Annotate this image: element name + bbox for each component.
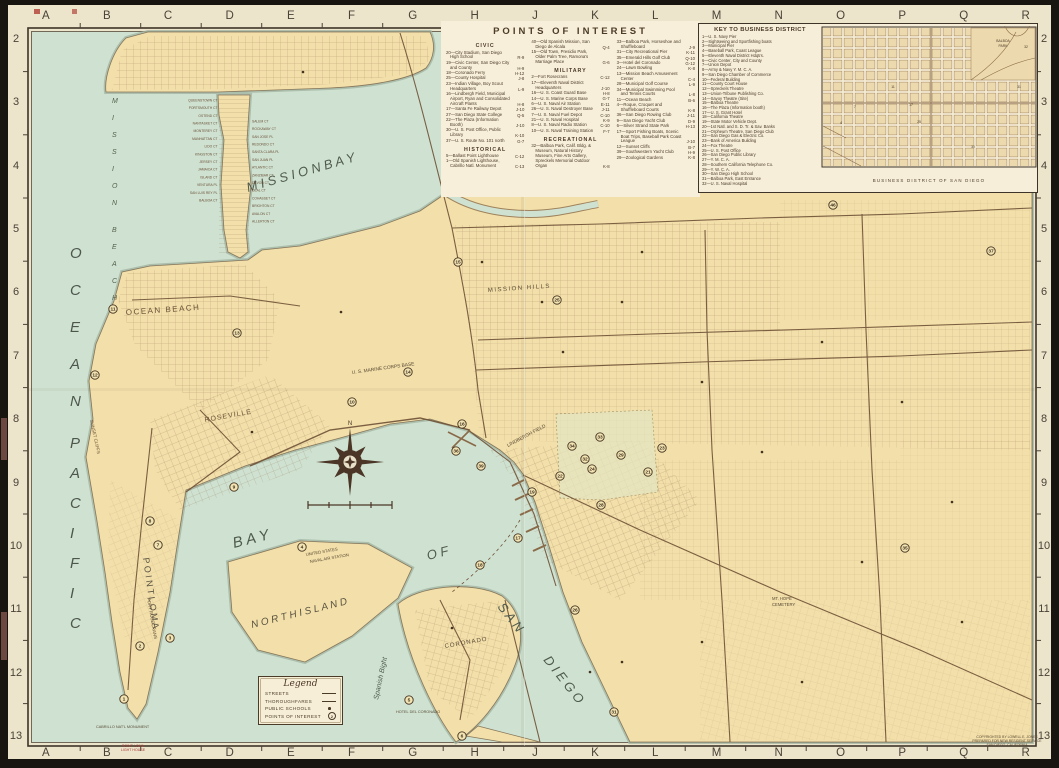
svg-text:17: 17	[515, 536, 521, 542]
grid-number: 5	[1041, 223, 1047, 235]
poi-entry: 20—City Stadium, San Diego High SchoolR-…	[446, 51, 524, 61]
grid-number: 10	[10, 540, 22, 552]
svg-text:22: 22	[557, 474, 563, 480]
svg-text:7: 7	[157, 543, 160, 549]
business-district-key-panel: KEY TO BUSINESS DISTRICT 1—U. S. Navy Pi…	[698, 23, 1038, 193]
svg-text:29: 29	[618, 453, 624, 459]
grid-number: 11	[1038, 603, 1049, 615]
grid-letter: C	[164, 10, 172, 24]
svg-text:34: 34	[569, 444, 575, 450]
grid-columns-bottom: ABCDEFGHJKLMNOPQR	[42, 747, 1030, 761]
svg-text:17: 17	[909, 103, 913, 107]
poi-entry: HISTORICAL	[446, 147, 524, 153]
grid-number: 9	[13, 477, 19, 489]
grid-letter: R	[1022, 747, 1030, 761]
poi-column-2: 40—Old Spanish Mission, San Diego de Alc…	[531, 40, 609, 170]
grid-letter: D	[225, 747, 233, 761]
poi-column-3: 33—Balboa Park, Horseshoe and Shuffleboa…	[617, 40, 695, 170]
points-of-interest-panel: POINTS OF INTEREST CIVIC20—City Stadium,…	[441, 21, 700, 197]
svg-text:46: 46	[830, 203, 836, 209]
grid-letter: O	[836, 10, 845, 24]
key-entry: 32—U. S. Naval Hospital	[702, 182, 818, 187]
legend-rows: STREETS THOROUGHFARES PUBLIC SCHOOLS POI…	[265, 690, 336, 720]
svg-text:26: 26	[572, 608, 578, 614]
grid-letter: P	[898, 747, 906, 761]
poi-entry: 32—Balboa Park, Calif. Bldg. & Museum, N…	[531, 144, 609, 168]
svg-text:14: 14	[405, 370, 411, 376]
poi-entry: 17—Sport Fishing Boats, Scenic Boat Trip…	[617, 130, 695, 145]
grid-number: 4	[1041, 160, 1047, 172]
svg-text:2: 2	[139, 644, 142, 650]
grid-number: 10	[1038, 540, 1050, 552]
legend-panel: Legend STREETS THOROUGHFARES PUBLIC SCHO…	[258, 676, 343, 725]
svg-text:30: 30	[971, 145, 975, 149]
grid-letter: P	[898, 10, 906, 24]
poi-columns: CIVIC20—City Stadium, San Diego High Sch…	[446, 40, 695, 170]
legend-symbol	[322, 701, 336, 702]
poi-entry: CIVIC	[446, 43, 524, 49]
edge-mark	[1, 418, 7, 460]
svg-text:16: 16	[459, 422, 465, 428]
legend-row: STREETS	[265, 690, 336, 698]
grid-number: 13	[10, 730, 22, 742]
svg-text:4: 4	[301, 545, 304, 551]
svg-text:19: 19	[529, 490, 535, 496]
grid-letter: J	[532, 747, 538, 761]
legend-label: THOROUGHFARES	[265, 699, 322, 704]
grid-letter: C	[164, 747, 172, 761]
court-names-east: SALEM CT ROCKAWAY CT SAN JOSE PL REDONDO…	[252, 118, 313, 226]
grid-letter: D	[225, 10, 233, 24]
poi-entry: 1—Old Spanish Lighthouse, Cabrillo Natl.…	[446, 159, 524, 169]
legend-label: PUBLIC SCHOOLS	[265, 706, 328, 711]
edge-mark	[1, 612, 7, 660]
svg-text:31: 31	[1017, 85, 1021, 89]
legend-symbol	[328, 707, 331, 710]
grid-letter: F	[348, 10, 355, 24]
legend-row: PUBLIC SCHOOLS	[265, 705, 336, 713]
inset-balboa-label: BALBOA	[996, 39, 1010, 43]
svg-text:32: 32	[582, 457, 588, 463]
poi-entry: 34—Municipal Swimming Pool and Tennis Co…	[617, 88, 695, 98]
inset-balboa-park	[971, 28, 1035, 80]
poi-entry: MILITARY	[531, 68, 609, 74]
legend-label: POINTS OF INTEREST	[265, 714, 328, 719]
court-names-west: QUEENSTOWN CT PORTSMOUTH CT OSTEND CT NA…	[146, 97, 218, 205]
grid-letter: N	[775, 747, 783, 761]
svg-text:25: 25	[554, 298, 560, 304]
svg-text:12: 12	[92, 373, 98, 379]
svg-text:11: 11	[110, 307, 115, 313]
grid-number: 8	[13, 413, 19, 425]
legend-title: Legend	[265, 679, 336, 689]
poi-entry: 30—U. S. Post Office, Public LibraryK-10	[446, 128, 524, 138]
grid-number: 5	[13, 223, 19, 235]
grid-number: 12	[1038, 667, 1050, 679]
mt-hope-label2: CEMETERY	[772, 602, 795, 607]
legend-symbol	[322, 693, 336, 694]
grid-letter: F	[348, 747, 355, 761]
grid-letter: H	[470, 747, 478, 761]
grid-number: 7	[1041, 350, 1047, 362]
grid-number: 3	[1041, 96, 1047, 108]
copyright-note: COPYRIGHTED BY LOWELL E. JONES PREPARED …	[970, 735, 1044, 747]
grid-number: 12	[10, 667, 22, 679]
svg-text:28: 28	[598, 503, 604, 509]
grid-number: 2	[1041, 33, 1047, 45]
grid-rows-right: 2345678910111213	[1037, 33, 1051, 742]
svg-text:7: 7	[854, 105, 856, 109]
poi-entry: RECREATIONAL	[531, 137, 609, 143]
poi-column-1: CIVIC20—City Stadium, San Diego High Sch…	[446, 40, 524, 170]
poi-title: POINTS OF INTEREST	[446, 26, 695, 37]
svg-text:1: 1	[123, 697, 126, 703]
key-list-column: KEY TO BUSINESS DISTRICT 1—U. S. Navy Pi…	[702, 26, 821, 190]
grid-number: 8	[1041, 413, 1047, 425]
svg-text:31: 31	[611, 710, 617, 716]
grid-letter: B	[103, 747, 111, 761]
svg-text:24: 24	[589, 467, 595, 473]
grid-letter: A	[42, 747, 50, 761]
corner-mark	[34, 9, 40, 14]
grid-letter: N	[775, 10, 783, 24]
svg-text:4: 4	[840, 121, 842, 125]
svg-text:35: 35	[902, 546, 908, 552]
inset-caption: BUSINESS DISTRICT OF SAN DIEGO	[873, 178, 986, 183]
grid-number: 2	[13, 33, 19, 45]
svg-text:8: 8	[149, 519, 152, 525]
grid-letter: Q	[959, 747, 968, 761]
grid-number: 6	[13, 286, 19, 298]
legend-row: POINTS OF INTEREST 2	[265, 713, 336, 721]
grid-letter: G	[408, 10, 417, 24]
poi-entry: 16—Lindbergh Field, Municipal Airport, R…	[446, 92, 524, 107]
grid-letter: E	[287, 10, 295, 24]
grid-number: 7	[13, 350, 19, 362]
key-list: 1—U. S. Navy Pier2—Sightseeing and Sport…	[702, 35, 818, 187]
poi-entry: 10—U. S. Naval Training StationF-7	[531, 129, 609, 134]
mt-hope-label: MT. HOPE	[772, 596, 792, 601]
poi-entry: 37—U. S. Route No. 101 northG-7	[446, 139, 524, 144]
business-district-inset: BALBOA PARK 47111725303132 BUSINESS DIST…	[821, 26, 1037, 190]
grid-number: 9	[1041, 477, 1047, 489]
svg-text:10: 10	[349, 400, 355, 406]
hotel-del-coronado-label: HOTEL DEL CORONADO	[396, 710, 440, 714]
svg-text:37: 37	[988, 249, 994, 255]
key-title: KEY TO BUSINESS DISTRICT	[702, 27, 818, 33]
legend-symbol: 2	[328, 712, 336, 720]
svg-text:13: 13	[234, 331, 240, 337]
poi-entry: 15—Old Town, Presidio Park, Older Palm T…	[531, 50, 609, 65]
map-sheet: N OCEAN PACIFIC MISSIONBEACH M I S S I O…	[0, 0, 1059, 768]
grid-letter: B	[103, 10, 111, 24]
svg-text:39: 39	[478, 464, 484, 470]
svg-text:25: 25	[917, 120, 921, 124]
grid-letter: E	[287, 747, 295, 761]
grid-letter: G	[408, 747, 417, 761]
grid-letter: L	[652, 747, 658, 761]
legend-label: STREETS	[265, 691, 322, 696]
grid-letter: Q	[959, 10, 968, 24]
svg-text:11: 11	[891, 85, 895, 89]
svg-text:32: 32	[1024, 45, 1028, 49]
svg-text:6: 6	[461, 734, 464, 740]
grid-rows-left: 2345678910111213	[9, 33, 23, 742]
svg-text:15: 15	[455, 260, 461, 266]
svg-text:3: 3	[169, 636, 172, 642]
svg-text:36: 36	[453, 449, 459, 455]
compass-north-label: N	[348, 421, 352, 427]
svg-text:18: 18	[477, 563, 483, 569]
balboa-park-area	[556, 410, 658, 500]
inset-balboa-label2: PARK	[999, 44, 1009, 48]
svg-text:23: 23	[659, 446, 665, 452]
grid-number: 4	[13, 160, 19, 172]
grid-letter: O	[836, 747, 845, 761]
grid-number: 6	[1041, 286, 1047, 298]
svg-text:33: 33	[597, 435, 603, 441]
light-house-note: POINT LOMA LIGHT HOUSE	[112, 744, 154, 752]
inset-map: BALBOA PARK 47111725303132	[821, 26, 1037, 176]
cabrillo-label: CABRILLO NAT'L MONUMENT	[96, 725, 150, 729]
grid-letter: K	[591, 747, 599, 761]
grid-letter: A	[42, 10, 50, 24]
grid-letter: M	[712, 747, 722, 761]
svg-text:9: 9	[233, 485, 236, 491]
grid-letter: M	[712, 10, 722, 24]
poi-entry: 29—Zoological GardensK-8	[617, 156, 695, 161]
grid-number: 3	[13, 96, 19, 108]
grid-letter: R	[1022, 10, 1030, 24]
grid-number: 11	[10, 603, 21, 615]
svg-text:21: 21	[645, 470, 651, 476]
svg-text:5: 5	[408, 698, 411, 704]
legend-row: THOROUGHFARES	[265, 698, 336, 706]
